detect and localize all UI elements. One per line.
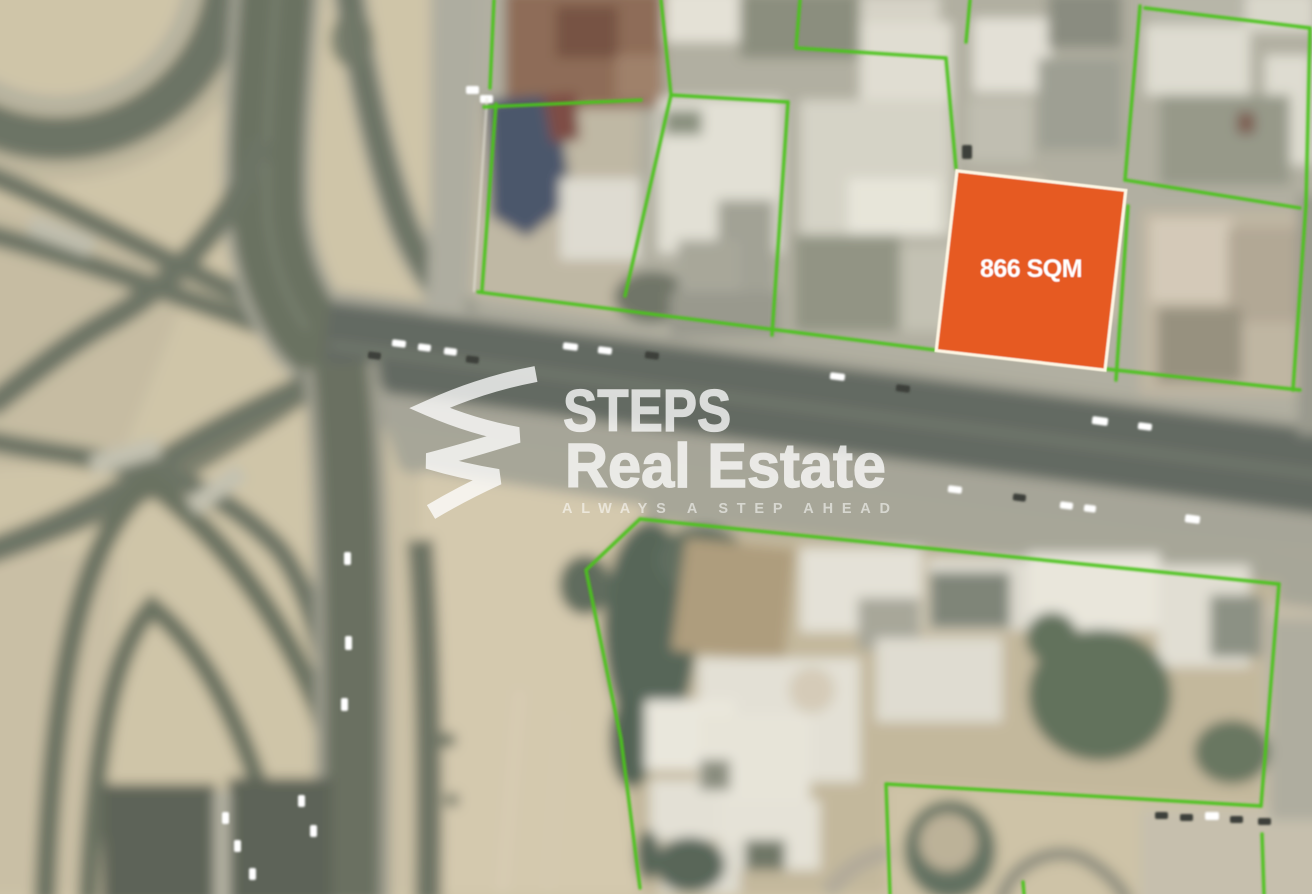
svg-text:Real Estate: Real Estate <box>565 431 886 500</box>
svg-text:866 SQM: 866 SQM <box>980 255 1082 283</box>
